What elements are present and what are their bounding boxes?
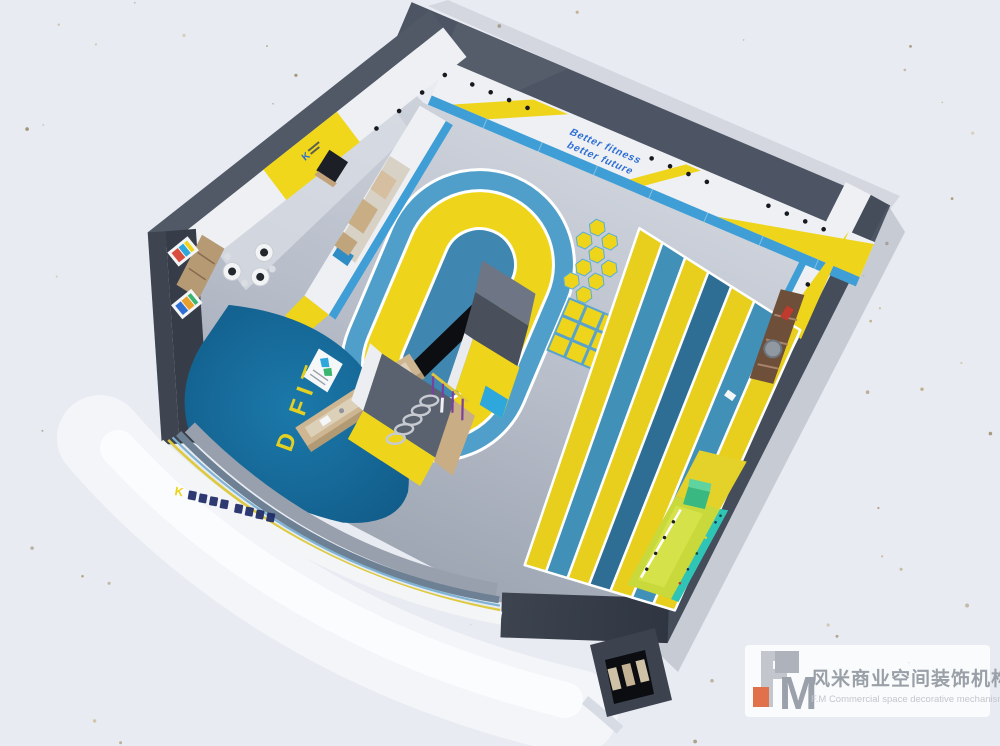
watermark-company-cn: 风米商业空间装饰机构 bbox=[811, 667, 1000, 690]
watermark-company-en: F.M Commercial space decorative mechanis… bbox=[811, 694, 1000, 705]
render-canvas: Better fitness better future K bbox=[0, 0, 1000, 746]
gym-aerial-render: Better fitness better future K bbox=[0, 0, 1000, 746]
fm-logo-orange-block bbox=[753, 687, 769, 707]
watermark: M 风米商业空间装饰机构 F.M Commercial space decora… bbox=[745, 645, 1000, 719]
